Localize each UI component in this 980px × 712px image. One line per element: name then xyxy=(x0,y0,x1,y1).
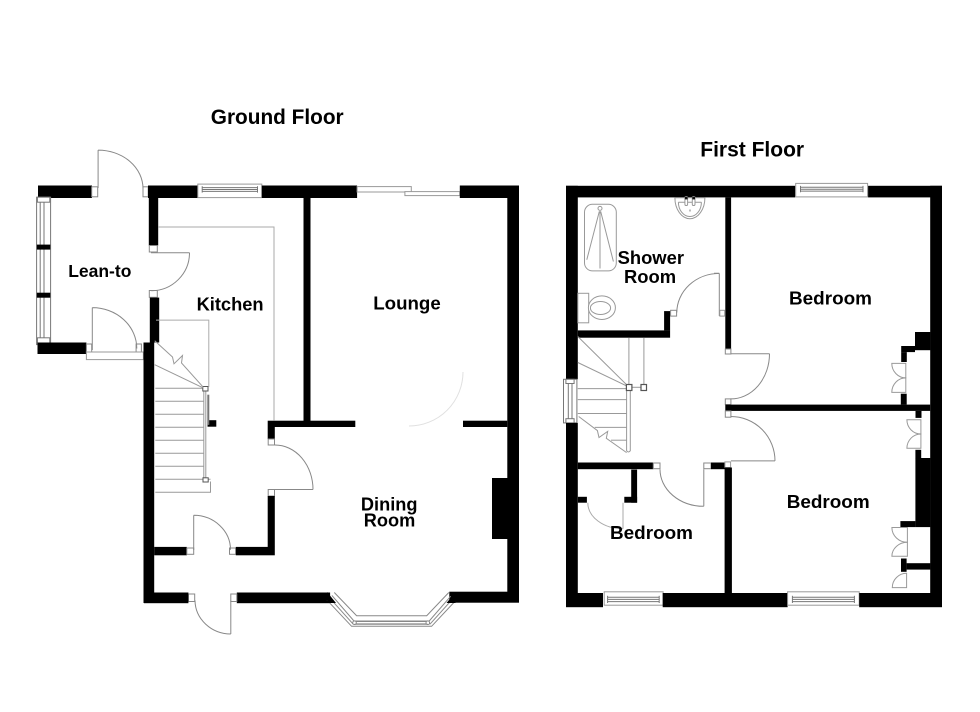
svg-text:Lounge: Lounge xyxy=(373,293,440,314)
svg-text:Room: Room xyxy=(364,510,416,530)
svg-text:Bedroom: Bedroom xyxy=(787,492,870,513)
svg-text:Room: Room xyxy=(624,266,676,287)
svg-text:Kitchen: Kitchen xyxy=(197,293,264,314)
svg-text:First Floor: First Floor xyxy=(700,139,804,162)
svg-text:Ground Floor: Ground Floor xyxy=(211,106,344,129)
svg-text:Bedroom: Bedroom xyxy=(789,288,872,309)
svg-text:Bedroom: Bedroom xyxy=(610,523,693,544)
svg-text:Lean-to: Lean-to xyxy=(68,261,131,281)
